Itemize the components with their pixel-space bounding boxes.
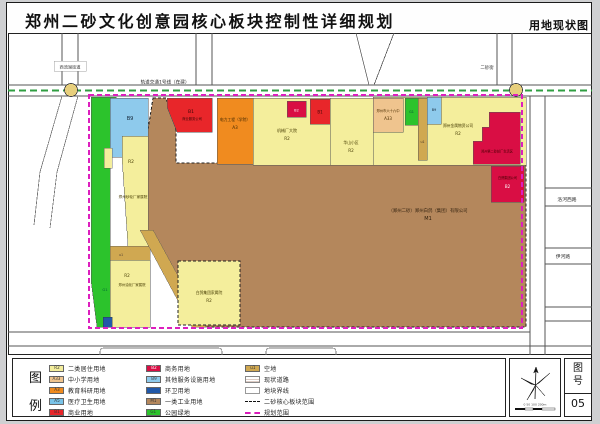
- legend: 图 例 R2二类居住用地 A33中小学用地 A3教育科研用地 A5医疗卫生用地 …: [12, 358, 506, 417]
- legend-swatch-a5: A5: [49, 398, 64, 405]
- road-label-luohe: 洛河西路: [557, 196, 576, 203]
- legend-item-a5: A5医疗卫生用地: [49, 397, 106, 406]
- parcel-a3-school: [217, 98, 253, 164]
- legend-item-existing-road: 现状道路: [245, 375, 289, 384]
- label-m1-name: （郑州二砂）郑州白鸽（集团）有限公司: [388, 207, 467, 214]
- label-r2-a-name: 机械厂大院: [277, 127, 297, 133]
- landuse-map: 西流湖街道 轨道交通1号线（在建） 二砂街 洛河西路 伊河路 （郑州二砂）郑州白…: [8, 33, 592, 355]
- label-a33-name: 郑州市六十六中: [376, 108, 399, 113]
- metro-label: 轨道交通1号线（在建）: [141, 79, 190, 86]
- legend-item-planning-scope: 规划范围: [245, 408, 289, 417]
- label-b9-small: B9: [432, 108, 436, 112]
- label-r2-west-name: 郑州砂轮厂家属院: [119, 194, 148, 199]
- street-ersha-label: 二砂街: [480, 64, 494, 71]
- label-b1-small: B1: [317, 110, 323, 115]
- legend-item-b1: B1商业用地: [49, 408, 93, 417]
- map-type-label: 用地现状图: [529, 17, 589, 33]
- label-r2-sw-name: 郑州油化厂家属院: [118, 282, 146, 287]
- figure-number-label: 图 号: [565, 362, 591, 388]
- scale-bar: [515, 408, 555, 410]
- legend-title-char1: 图: [29, 367, 42, 386]
- figure-box-divider: [565, 393, 591, 394]
- legend-title-char2: 例: [29, 395, 42, 414]
- legend-swatch-r2: R2: [49, 365, 64, 372]
- parcel-r2-west: [122, 136, 148, 246]
- parcel-sanitation: [103, 317, 112, 327]
- figure-number-value: 05: [565, 397, 591, 410]
- legend-item-b9: B9其他服务设施用地: [146, 375, 215, 384]
- label-r2-b-name: 华山小区: [343, 140, 358, 145]
- label-b1-north-code: B1: [188, 109, 194, 115]
- legend-item-m1: M1一类工业用地: [146, 397, 203, 406]
- label-g1-small: G1: [409, 110, 414, 114]
- label-u1-small: u1: [420, 140, 424, 144]
- label-r2-center-name: 白鸽集团家属院: [196, 290, 223, 295]
- label-b1-north-name: 商业服务公司: [182, 116, 202, 121]
- legend-item-a3: A3教育科研用地: [49, 386, 106, 395]
- parcel-r2-southwest: [110, 260, 150, 327]
- label-r2-sw-code: R2: [124, 273, 130, 278]
- label-r2-center-code: R2: [206, 298, 212, 303]
- legend-item-plot-boundary: 地块界线: [245, 386, 289, 395]
- road-label-yihe: 伊河路: [556, 253, 571, 260]
- legend-swatch-sanitation: [146, 387, 161, 394]
- label-a3-code: A3: [232, 125, 238, 130]
- page-title: 郑州二砂文化创意园核心板块控制性详细规划: [25, 8, 395, 32]
- label-b2-east-text: 郑州第二砂轮厂生活区: [481, 149, 514, 154]
- legend-swatch-existing-road: [245, 376, 260, 383]
- legend-swatch-core-block: [245, 401, 260, 402]
- legend-swatch-a33: A33: [49, 376, 64, 383]
- plan-sheet-page: { "header": { "title": "郑州二砂文化创意园核心板块控制性…: [0, 0, 600, 424]
- parcel-r2-b: [330, 98, 373, 165]
- legend-item-vacant: u1空地: [245, 364, 277, 373]
- scale-text: 0 50 100 200m: [524, 403, 547, 407]
- north-arrow-icon: 0 50 100 200m: [510, 359, 560, 415]
- legend-swatch-b9: B9: [146, 376, 161, 383]
- legend-item-sanitation: 环卫用地: [146, 386, 190, 395]
- parcel-u1-band: [110, 246, 150, 260]
- legend-swatch-g1: G1: [146, 409, 161, 416]
- label-m1-code: M1: [424, 216, 432, 222]
- legend-item-a33: A33中小学用地: [49, 375, 100, 384]
- legend-item-b2: B2商务用地: [146, 364, 190, 373]
- legend-swatch-planning-scope: [245, 412, 260, 414]
- legend-swatch-m1: M1: [146, 398, 161, 405]
- label-b9-west: B9: [127, 116, 134, 122]
- legend-swatch-b1: B1: [49, 409, 64, 416]
- parcel-a33-school: [373, 98, 403, 132]
- legend-swatch-b2: B2: [146, 365, 161, 372]
- label-r2-west-code: R2: [128, 159, 134, 165]
- label-r2-b-code: R2: [348, 148, 354, 153]
- label-u1-west: u1: [119, 253, 123, 257]
- label-b2-east2-code: B2: [505, 184, 511, 189]
- label-a3-name: 电力工程（学院）: [220, 117, 250, 122]
- legend-item-g1: G1公园绿地: [146, 408, 190, 417]
- label-b2-small: B2: [294, 109, 299, 113]
- label-r2-c-code: R2: [455, 131, 461, 136]
- legend-swatch-plot-boundary: [245, 387, 260, 394]
- parcel-u1-strip: [418, 98, 427, 160]
- north-arrow-box: 0 50 100 200m: [509, 358, 561, 417]
- roundabout-west: [65, 84, 78, 97]
- label-g1-west: G1: [102, 287, 108, 292]
- figure-number-box: 图 号 05: [564, 358, 592, 417]
- label-r2-c-name: 郑州金属物资公司: [443, 123, 474, 128]
- legend-swatch-a3: A3: [49, 387, 64, 394]
- label-b2-east2-name: 白鸽集团公司: [498, 175, 517, 180]
- legend-swatch-vacant: u1: [245, 365, 260, 372]
- legend-item-core-block: 二砂核心板块范围: [245, 397, 314, 406]
- label-a33-code: A33: [384, 116, 392, 121]
- legend-item-r2: R2二类居住用地: [49, 364, 106, 373]
- label-r2-a-code: R2: [284, 136, 290, 141]
- district-label: 西流湖街道: [60, 64, 82, 71]
- parcel-r2-west-notch: [104, 148, 112, 168]
